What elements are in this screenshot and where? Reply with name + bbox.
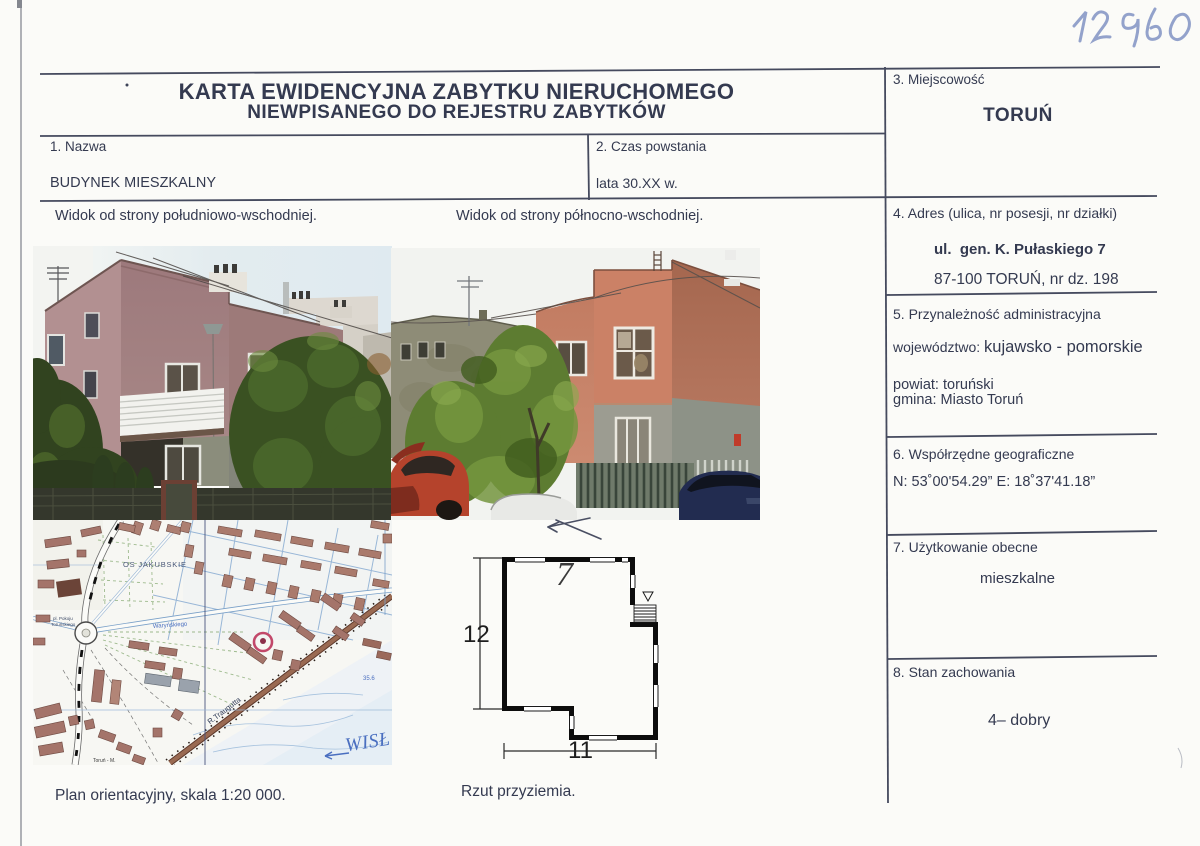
svg-text:11: 11 — [568, 737, 593, 764]
svg-text:12: 12 — [463, 621, 490, 648]
svg-text:35.6: 35.6 — [363, 676, 375, 682]
svg-text:OS JAKUBSKIE: OS JAKUBSKIE — [123, 560, 187, 569]
svg-text:Toruńskiego: Toruńskiego — [51, 622, 76, 627]
svg-text:pl. Pokoju: pl. Pokoju — [53, 616, 73, 621]
svg-text:Toruń - M.: Toruń - M. — [93, 758, 116, 764]
